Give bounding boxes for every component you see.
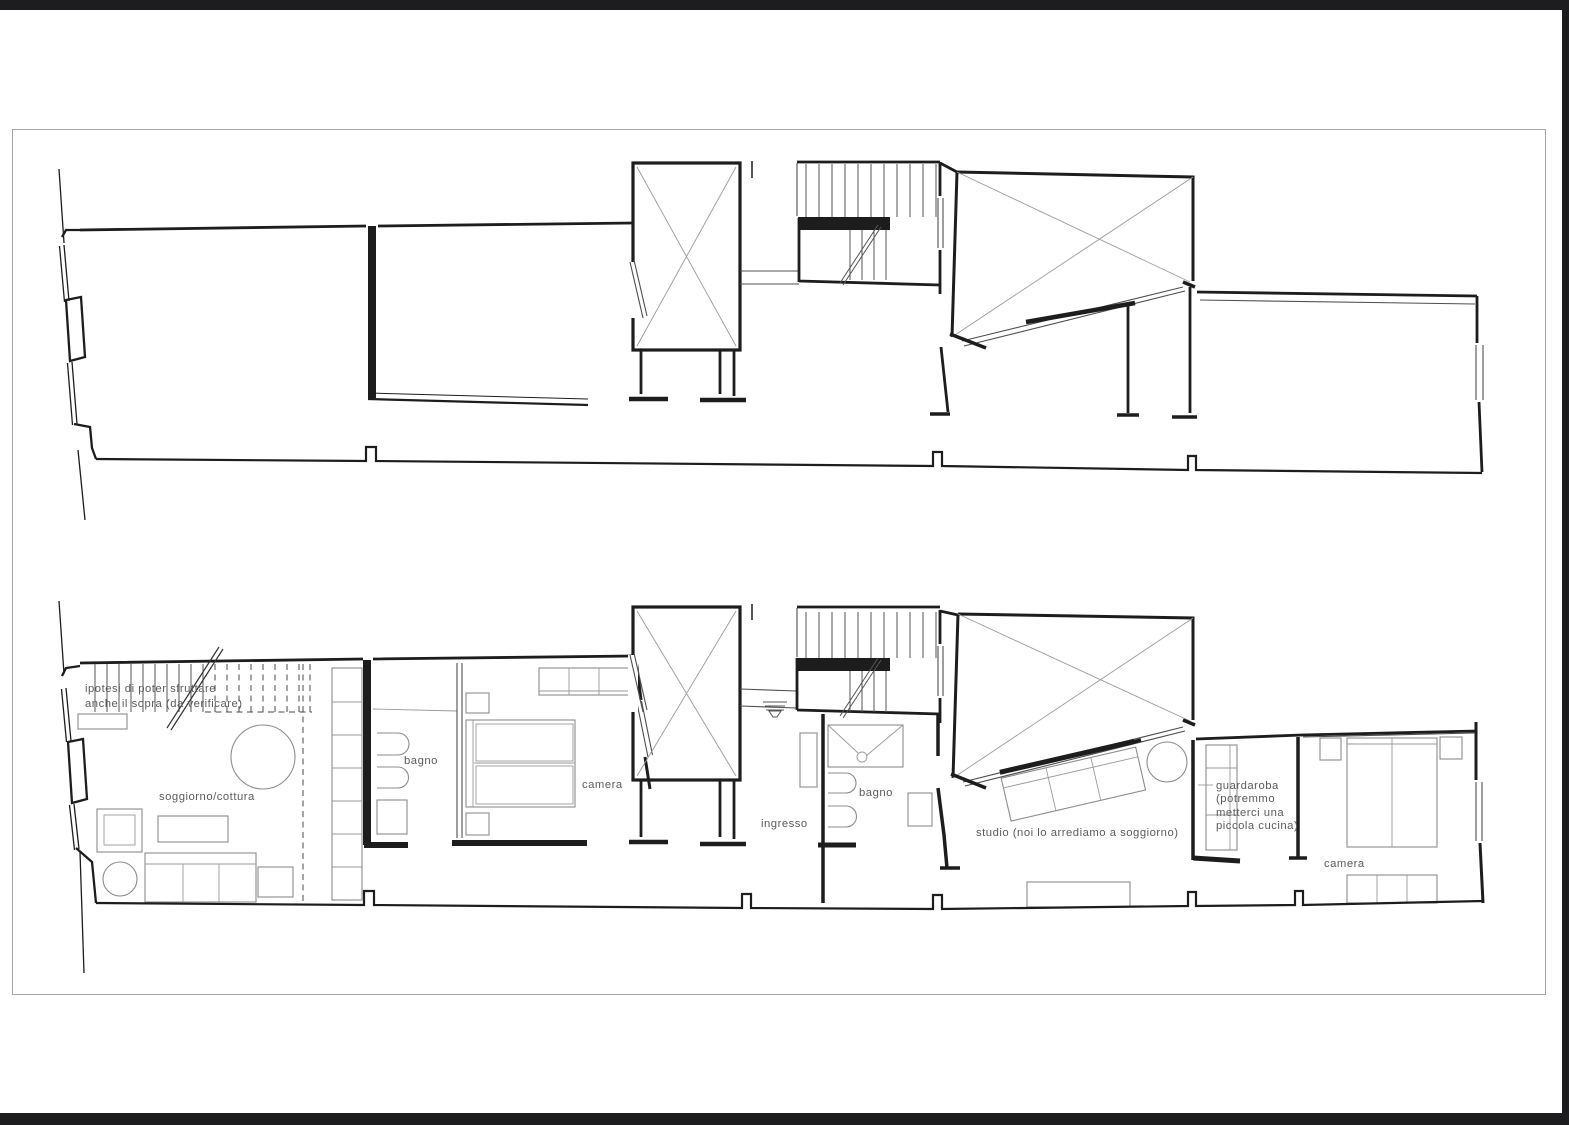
label-guardaroba-line1: guardaroba xyxy=(1216,780,1279,792)
label-studio: studio (noi lo arrediamo a soggiorno) xyxy=(976,827,1179,839)
screenshot-canvas: ipotesi di poter sfruttare anche il sopr… xyxy=(0,0,1569,1125)
bottom-frame-bar xyxy=(0,1113,1569,1125)
label-guardaroba-line3: metterci una xyxy=(1216,807,1284,819)
right-frame-bar xyxy=(1562,0,1569,1125)
label-bagno-right: bagno xyxy=(859,787,893,799)
label-guardaroba-line4: piccola cucina) xyxy=(1216,820,1298,832)
label-bagno-left: bagno xyxy=(404,755,438,767)
label-camera-left: camera xyxy=(582,779,623,791)
top-frame-bar xyxy=(0,0,1569,10)
floor-plan-drawing: ipotesi di poter sfruttare anche il sopr… xyxy=(0,0,1569,1125)
label-soggiorno: soggiorno/cottura xyxy=(159,791,255,803)
note-upper-level-line2: anche il sopra (da verificare) xyxy=(85,698,243,710)
label-guardaroba-line2: (potremmo xyxy=(1216,793,1275,805)
drawing-page xyxy=(13,130,1546,995)
note-upper-level-line1: ipotesi di poter sfruttare xyxy=(85,683,216,695)
label-camera-right: camera xyxy=(1324,858,1365,870)
label-ingresso: ingresso xyxy=(761,818,808,830)
